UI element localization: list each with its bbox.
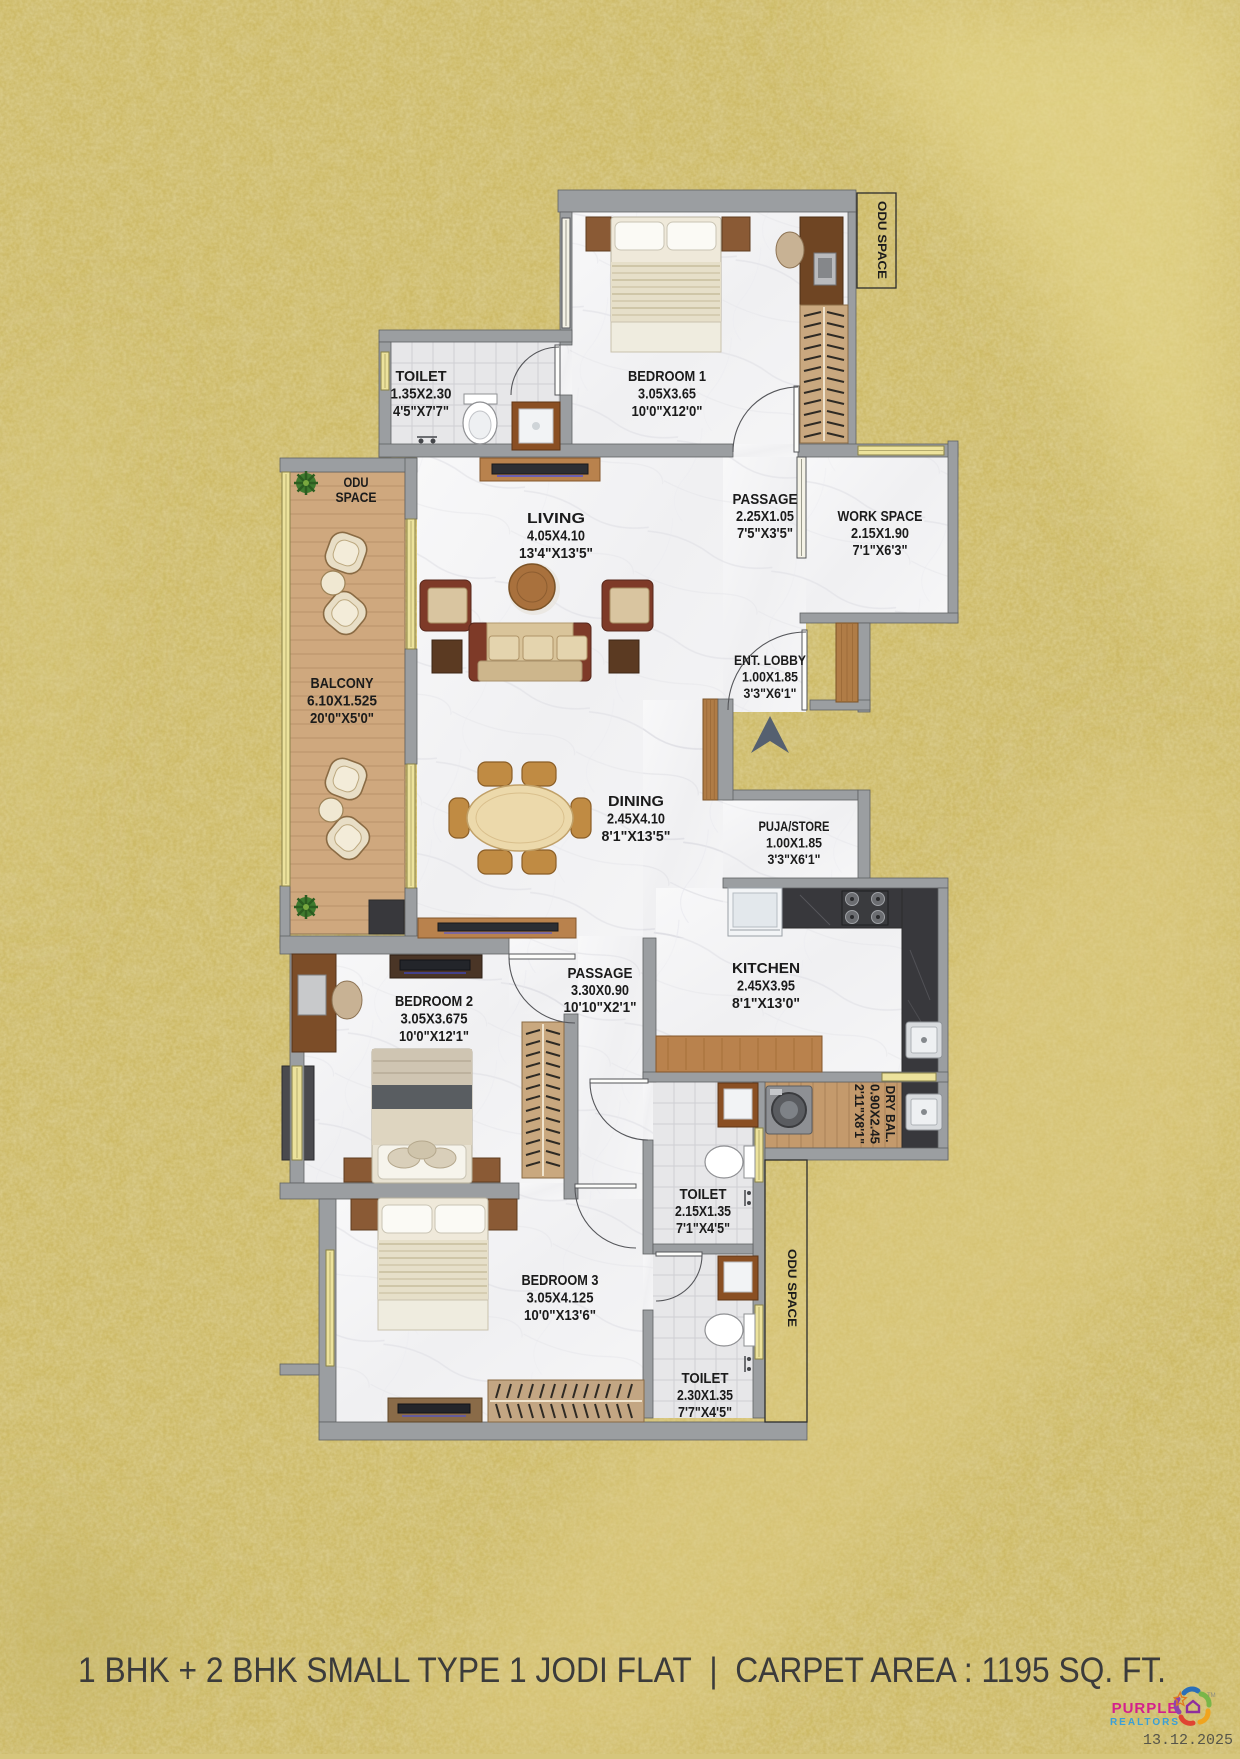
svg-text:7'1"X4'5": 7'1"X4'5": [676, 1221, 730, 1237]
svg-text:10'0"X12'0": 10'0"X12'0": [632, 403, 703, 420]
svg-text:2.25X1.05: 2.25X1.05: [736, 509, 794, 525]
svg-text:PASSAGE: PASSAGE: [733, 492, 798, 508]
svg-text:PURPLE: PURPLE: [1112, 1700, 1179, 1717]
svg-text:1.35X2.30: 1.35X2.30: [391, 386, 452, 403]
svg-text:7'7"X4'5": 7'7"X4'5": [678, 1405, 732, 1421]
svg-text:10'0"X12'1": 10'0"X12'1": [399, 1028, 469, 1045]
svg-text:2'11"X8'1": 2'11"X8'1": [852, 1084, 867, 1144]
svg-text:DINING: DINING: [608, 793, 664, 810]
svg-text:SPACE: SPACE: [336, 490, 377, 505]
svg-text:DRY BAL.: DRY BAL.: [883, 1086, 898, 1143]
svg-text:BEDROOM 2: BEDROOM 2: [395, 993, 473, 1010]
svg-text:8'1"X13'5": 8'1"X13'5": [602, 828, 671, 845]
svg-text:3.05X3.65: 3.05X3.65: [638, 386, 696, 403]
svg-text:10'0"X13'6": 10'0"X13'6": [524, 1307, 596, 1324]
svg-text:2.45X3.95: 2.45X3.95: [737, 978, 795, 995]
svg-text:3.05X4.125: 3.05X4.125: [527, 1290, 594, 1307]
svg-text:TOILET: TOILET: [680, 1187, 727, 1203]
svg-text:3'3"X6'1": 3'3"X6'1": [768, 851, 821, 867]
svg-text:REALTORS: REALTORS: [1110, 1717, 1180, 1728]
svg-text:2.45X4.10: 2.45X4.10: [607, 811, 665, 828]
svg-text:4'5"X7'7": 4'5"X7'7": [393, 403, 449, 420]
svg-text:PASSAGE: PASSAGE: [568, 966, 633, 982]
svg-text:10'10"X2'1": 10'10"X2'1": [564, 1000, 637, 1016]
svg-text:1.00X1.85: 1.00X1.85: [766, 835, 822, 851]
svg-text:PUJA/STORE: PUJA/STORE: [759, 818, 830, 834]
svg-text:7'1"X6'3": 7'1"X6'3": [853, 543, 908, 559]
svg-text:8'1"X13'0": 8'1"X13'0": [732, 995, 800, 1012]
svg-text:3.30X0.90: 3.30X0.90: [571, 983, 629, 999]
svg-text:2.15X1.90: 2.15X1.90: [851, 526, 909, 542]
svg-text:BEDROOM 3: BEDROOM 3: [522, 1272, 599, 1289]
svg-text:2.15X1.35: 2.15X1.35: [675, 1204, 731, 1220]
svg-text:0.90X2.45: 0.90X2.45: [868, 1084, 883, 1144]
svg-text:BEDROOM 1: BEDROOM 1: [628, 368, 706, 385]
svg-text:2.30X1.35: 2.30X1.35: [677, 1388, 733, 1404]
svg-text:KITCHEN: KITCHEN: [732, 960, 800, 977]
svg-text:ODU SPACE: ODU SPACE: [785, 1249, 799, 1327]
svg-text:4.05X4.10: 4.05X4.10: [527, 528, 585, 545]
svg-text:LIVING: LIVING: [527, 510, 585, 527]
svg-text:ODU SPACE: ODU SPACE: [875, 201, 889, 279]
svg-text:ODU: ODU: [344, 475, 369, 490]
svg-text:TOILET: TOILET: [396, 368, 447, 385]
svg-text:TOILET: TOILET: [682, 1371, 729, 1387]
svg-text:3'3"X6'1": 3'3"X6'1": [744, 685, 797, 701]
svg-text:1.00X1.85: 1.00X1.85: [742, 669, 798, 685]
svg-text:BALCONY: BALCONY: [311, 675, 374, 692]
svg-text:WORK SPACE: WORK SPACE: [838, 509, 923, 525]
svg-text:TM: TM: [1207, 1693, 1216, 1699]
svg-text:13'4"X13'5": 13'4"X13'5": [519, 545, 593, 562]
svg-text:1 BHK + 2 BHK SMALL TYPE 1 JOD: 1 BHK + 2 BHK SMALL TYPE 1 JODI FLAT | C…: [78, 1651, 1166, 1690]
svg-text:ENT. LOBBY: ENT. LOBBY: [734, 652, 807, 668]
svg-text:3.05X3.675: 3.05X3.675: [401, 1011, 468, 1028]
svg-text:6.10X1.525: 6.10X1.525: [307, 693, 377, 710]
svg-text:20'0"X5'0": 20'0"X5'0": [310, 710, 374, 727]
svg-text:13.12.2025: 13.12.2025: [1143, 1732, 1233, 1749]
svg-text:7'5"X3'5": 7'5"X3'5": [737, 526, 793, 542]
